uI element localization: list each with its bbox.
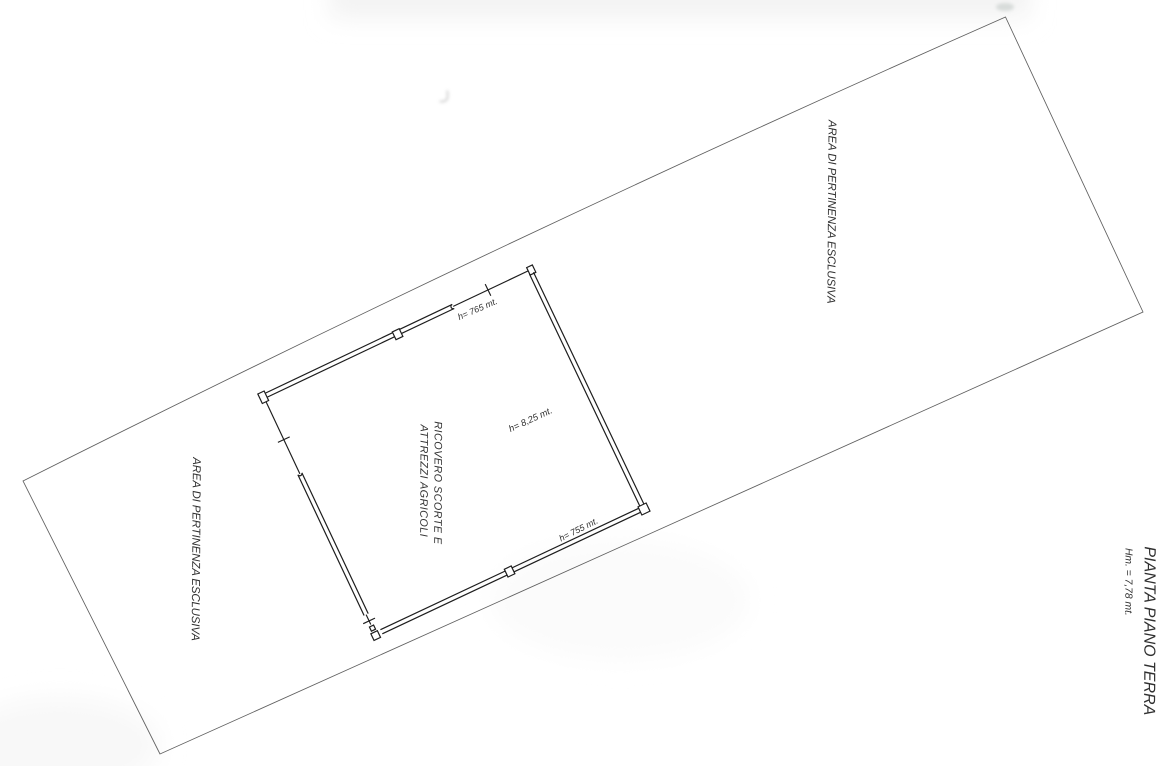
svg-text:Hm. = 7,78 mt.: Hm. = 7,78 mt. — [1122, 548, 1133, 616]
svg-text:ATTREZZI AGRICOLI: ATTREZZI AGRICOLI — [417, 424, 429, 538]
svg-text:AREA DI PERTINENZA ESCLUSIVA: AREA DI PERTINENZA ESCLUSIVA — [189, 456, 202, 641]
svg-text:PIANTA PIANO TERRA: PIANTA PIANO TERRA — [1140, 546, 1158, 715]
svg-text:RICOVERO SCORTE E: RICOVERO SCORTE E — [431, 421, 443, 545]
svg-text:AREA DI PERTINENZA ESCLUSIVA: AREA DI PERTINENZA ESCLUSIVA — [824, 119, 837, 304]
